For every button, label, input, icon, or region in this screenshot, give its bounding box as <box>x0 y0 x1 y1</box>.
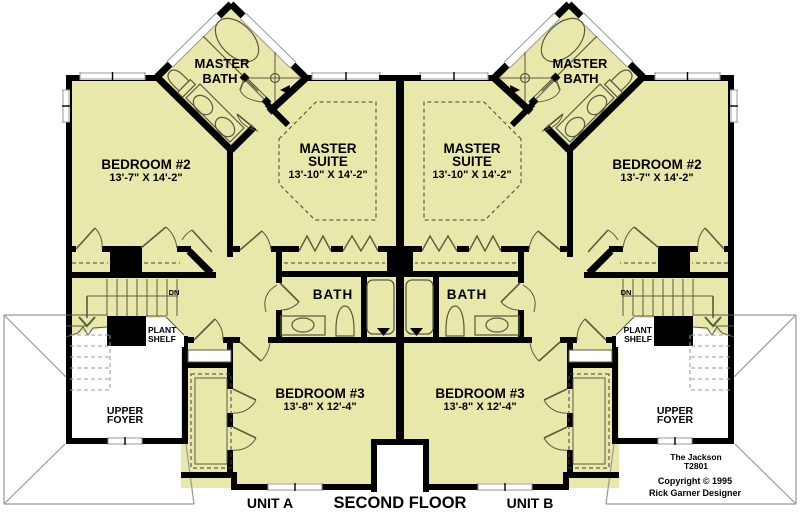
svg-text:MASTER: MASTER <box>195 56 251 71</box>
svg-text:Rick Garner Designer: Rick Garner Designer <box>649 488 742 498</box>
svg-text:FOYER: FOYER <box>657 414 694 426</box>
svg-text:SECOND FLOOR: SECOND FLOOR <box>334 494 467 512</box>
svg-text:SUITE: SUITE <box>452 154 492 169</box>
svg-text:13'-8" X 12'-4": 13'-8" X 12'-4" <box>283 401 356 413</box>
svg-text:BATH: BATH <box>447 287 488 302</box>
svg-text:BATH: BATH <box>563 71 598 86</box>
svg-text:UNIT B: UNIT B <box>507 495 554 511</box>
svg-text:DN: DN <box>169 288 180 297</box>
svg-text:BEDROOM #3: BEDROOM #3 <box>275 386 365 401</box>
svg-text:UNIT A: UNIT A <box>247 495 293 511</box>
svg-text:SHELF: SHELF <box>148 334 176 344</box>
svg-text:DN: DN <box>621 288 632 297</box>
svg-text:FOYER: FOYER <box>107 414 144 426</box>
svg-text:BATH: BATH <box>313 287 354 302</box>
svg-text:13'-10" X 14'-2": 13'-10" X 14'-2" <box>288 169 367 181</box>
svg-text:BEDROOM #2: BEDROOM #2 <box>101 157 190 172</box>
svg-text:13'-7" X 14'-2": 13'-7" X 14'-2" <box>620 172 693 184</box>
svg-text:SUITE: SUITE <box>308 154 348 169</box>
svg-text:BATH: BATH <box>202 71 237 86</box>
svg-text:13'-10" X 14'-2": 13'-10" X 14'-2" <box>432 169 511 181</box>
svg-text:BEDROOM #2: BEDROOM #2 <box>612 157 701 172</box>
svg-text:13'-8" X 12'-4": 13'-8" X 12'-4" <box>443 401 516 413</box>
svg-text:SHELF: SHELF <box>624 334 652 344</box>
svg-text:BEDROOM #3: BEDROOM #3 <box>435 386 525 401</box>
svg-text:T2801: T2801 <box>684 461 708 471</box>
svg-text:Copyright © 1995: Copyright © 1995 <box>658 476 732 486</box>
svg-text:MASTER: MASTER <box>553 56 609 71</box>
svg-text:13'-7" X 14'-2": 13'-7" X 14'-2" <box>109 172 182 184</box>
